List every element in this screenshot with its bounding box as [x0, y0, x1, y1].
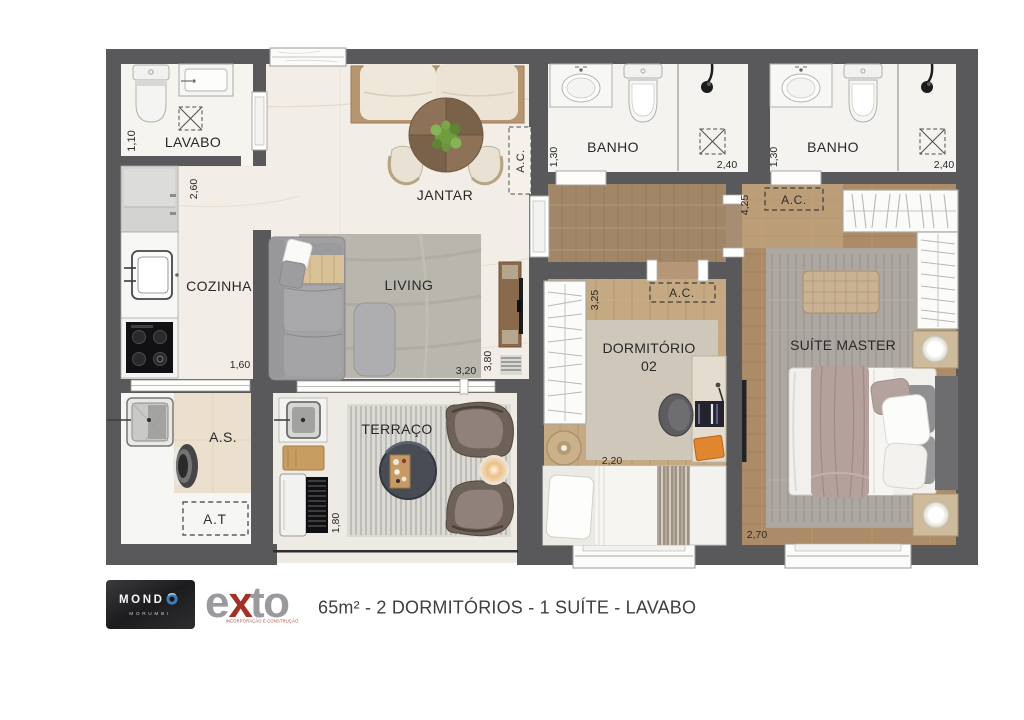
svg-text:A.T: A.T [203, 512, 226, 527]
svg-text:2,70: 2,70 [747, 529, 768, 541]
svg-text:1,60: 1,60 [230, 359, 251, 371]
svg-text:SUÍTE MASTER: SUÍTE MASTER [790, 337, 896, 353]
svg-text:BANHO: BANHO [807, 139, 859, 155]
svg-text:1,10: 1,10 [126, 130, 138, 151]
svg-text:e: e [205, 578, 228, 627]
svg-text:2,40: 2,40 [717, 159, 738, 171]
svg-text:4,25: 4,25 [739, 195, 751, 216]
svg-text:MOND: MOND [119, 594, 165, 606]
svg-text:A.C.: A.C. [515, 149, 527, 172]
svg-text:JANTAR: JANTAR [417, 187, 473, 203]
svg-text:65m² - 2 DORMITÓRIOS - 1 SUÍTE: 65m² - 2 DORMITÓRIOS - 1 SUÍTE - LAVABO [318, 597, 696, 618]
svg-text:BANHO: BANHO [587, 139, 639, 155]
svg-text:3,80: 3,80 [482, 351, 494, 372]
svg-text:LIVING: LIVING [385, 277, 434, 293]
svg-text:COZINHA: COZINHA [186, 278, 252, 294]
svg-text:02: 02 [641, 358, 657, 374]
svg-text:TERRAÇO: TERRAÇO [361, 421, 432, 437]
svg-text:1,30: 1,30 [548, 147, 560, 168]
svg-text:2,20: 2,20 [602, 455, 623, 467]
svg-text:A.S.: A.S. [209, 429, 237, 445]
svg-text:MORUMBI: MORUMBI [129, 611, 170, 617]
svg-text:1,80: 1,80 [330, 513, 342, 534]
svg-text:2,40: 2,40 [934, 159, 955, 171]
svg-text:2,60: 2,60 [188, 179, 200, 200]
svg-text:LAVABO: LAVABO [165, 134, 221, 150]
svg-text:DORMITÓRIO: DORMITÓRIO [603, 340, 696, 356]
svg-text:1,30: 1,30 [768, 147, 780, 168]
svg-text:INCORPORAÇÃO E CONSTRUÇÃO: INCORPORAÇÃO E CONSTRUÇÃO [226, 619, 299, 624]
svg-text:3,25: 3,25 [589, 290, 601, 311]
svg-text:A.C.: A.C. [781, 193, 807, 207]
svg-text:A.C.: A.C. [669, 286, 695, 300]
svg-text:3,20: 3,20 [456, 365, 477, 377]
